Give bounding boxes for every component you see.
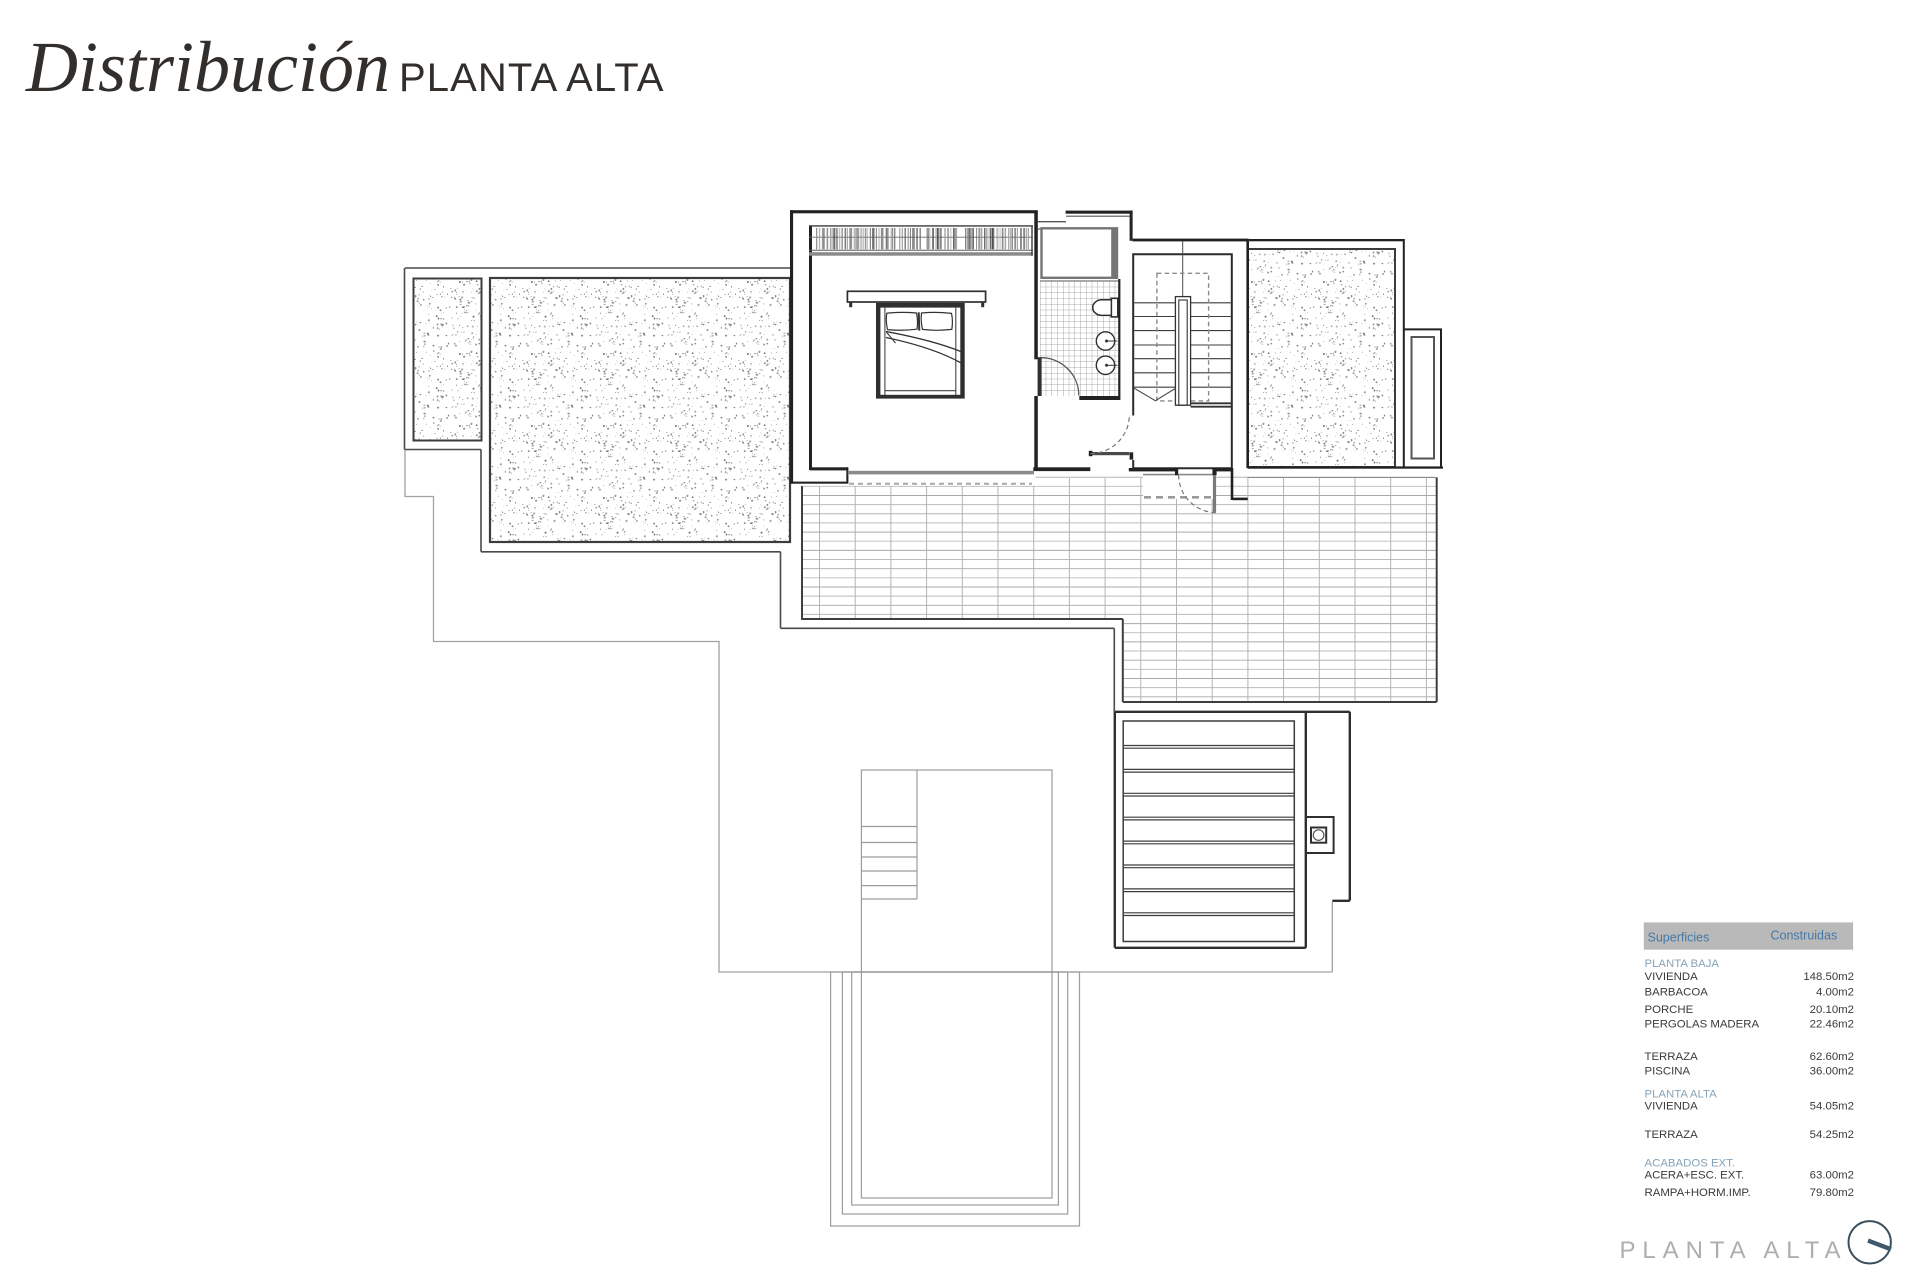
svg-text:4.00m2: 4.00m2 <box>1816 987 1854 999</box>
svg-text:PLANTA ALTA: PLANTA ALTA <box>399 56 665 100</box>
svg-text:ACABADOS EXT.: ACABADOS EXT. <box>1645 1157 1736 1169</box>
svg-text:63.00m2: 63.00m2 <box>1810 1170 1854 1182</box>
svg-text:20.10m2: 20.10m2 <box>1810 1004 1854 1016</box>
svg-text:TERRAZA: TERRAZA <box>1645 1051 1699 1063</box>
svg-text:79.80m2: 79.80m2 <box>1810 1187 1854 1199</box>
svg-text:VIVIENDA: VIVIENDA <box>1645 1101 1699 1113</box>
svg-text:PLANTA ALTA: PLANTA ALTA <box>1620 1237 1848 1264</box>
svg-text:148.50m2: 148.50m2 <box>1803 971 1854 983</box>
svg-text:RAMPA+HORM.IMP.: RAMPA+HORM.IMP. <box>1645 1187 1751 1199</box>
svg-text:VIVIENDA: VIVIENDA <box>1645 971 1699 983</box>
svg-text:ACERA+ESC. EXT.: ACERA+ESC. EXT. <box>1645 1170 1745 1182</box>
svg-text:22.46m2: 22.46m2 <box>1810 1018 1854 1030</box>
svg-text:54.25m2: 54.25m2 <box>1810 1129 1854 1141</box>
svg-text:Superficies: Superficies <box>1648 931 1710 945</box>
svg-text:BARBACOA: BARBACOA <box>1645 987 1709 999</box>
svg-text:PLANTA BAJA: PLANTA BAJA <box>1645 958 1720 970</box>
svg-text:54.05m2: 54.05m2 <box>1810 1101 1854 1113</box>
svg-text:36.00m2: 36.00m2 <box>1810 1065 1854 1077</box>
svg-text:PERGOLAS MADERA: PERGOLAS MADERA <box>1645 1018 1760 1030</box>
svg-text:PLANTA ALTA: PLANTA ALTA <box>1645 1089 1718 1101</box>
svg-text:Construidas: Construidas <box>1771 929 1838 943</box>
svg-text:Distribución: Distribución <box>25 27 390 107</box>
svg-text:62.60m2: 62.60m2 <box>1810 1051 1854 1063</box>
svg-text:PISCINA: PISCINA <box>1645 1065 1691 1077</box>
svg-text:PORCHE: PORCHE <box>1645 1004 1694 1016</box>
svg-text:TERRAZA: TERRAZA <box>1645 1129 1699 1141</box>
